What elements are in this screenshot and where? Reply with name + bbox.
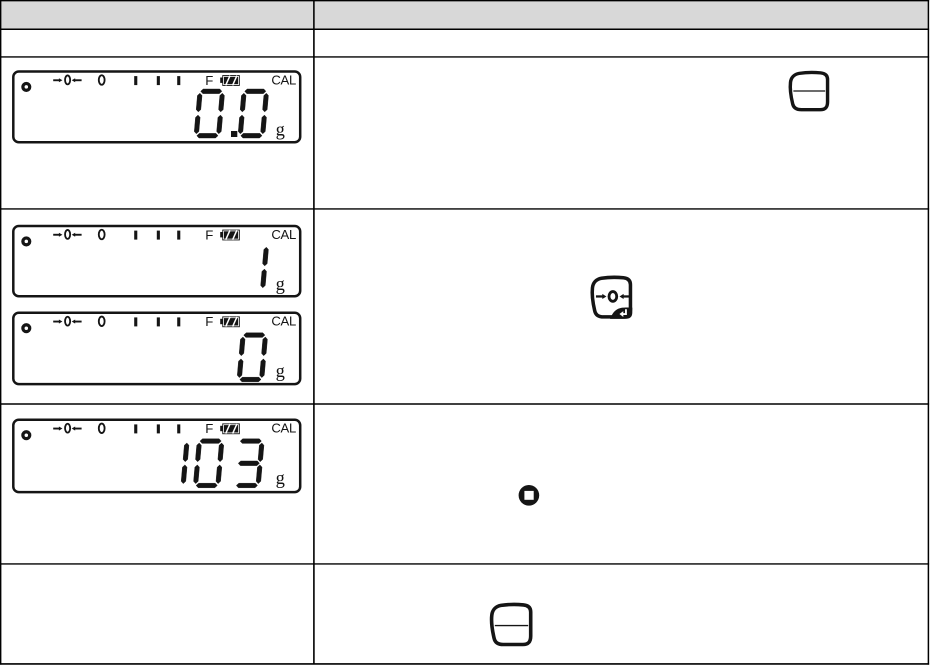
svg-text:g: g	[276, 275, 285, 295]
svg-text:F: F	[205, 421, 213, 436]
svg-text:F: F	[205, 73, 213, 88]
svg-text:g: g	[276, 469, 285, 489]
svg-text:CAL: CAL	[271, 72, 296, 87]
svg-text:F: F	[205, 227, 213, 242]
svg-text:g: g	[276, 121, 285, 141]
svg-text:CAL: CAL	[271, 227, 296, 242]
svg-text:g: g	[276, 362, 285, 382]
svg-text:CAL: CAL	[271, 421, 296, 436]
svg-text:F: F	[205, 314, 213, 329]
svg-text:CAL: CAL	[271, 314, 296, 329]
